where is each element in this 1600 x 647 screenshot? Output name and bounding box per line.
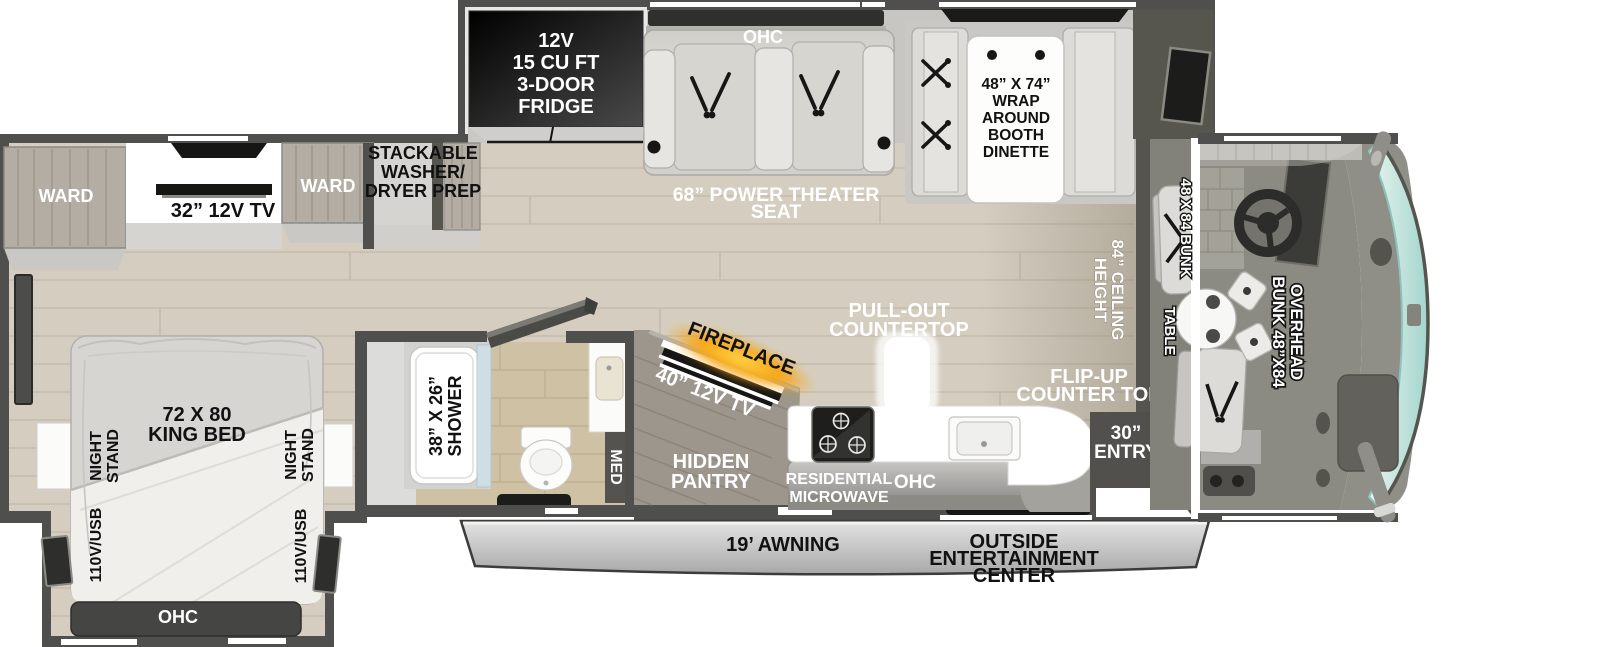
svg-text:48” X 74”: 48” X 74” xyxy=(982,76,1051,93)
svg-text:15 CU FT: 15 CU FT xyxy=(513,52,600,74)
svg-text:WARD: WARD xyxy=(301,176,356,196)
svg-text:STACKABLE: STACKABLE xyxy=(368,143,478,163)
svg-text:48 X 84 BUNK: 48 X 84 BUNK xyxy=(1177,178,1194,277)
svg-text:110V/USB: 110V/USB xyxy=(293,509,310,584)
svg-text:110V/USB: 110V/USB xyxy=(88,508,105,583)
svg-text:DRYER PREP: DRYER PREP xyxy=(365,181,481,201)
svg-text:SEAT: SEAT xyxy=(751,201,802,223)
svg-text:COUNTERTOP: COUNTERTOP xyxy=(829,319,969,341)
svg-text:AROUND: AROUND xyxy=(982,110,1050,127)
svg-text:WRAP: WRAP xyxy=(992,93,1039,110)
svg-text:SHOWER: SHOWER xyxy=(445,375,465,456)
svg-text:OHC: OHC xyxy=(743,27,783,47)
svg-text:OVERHEAD: OVERHEAD xyxy=(1287,284,1306,380)
svg-text:32” 12V TV: 32” 12V TV xyxy=(171,200,276,222)
svg-text:STAND: STAND xyxy=(105,429,122,483)
svg-text:NIGHT: NIGHT xyxy=(283,430,300,480)
svg-text:STAND: STAND xyxy=(300,428,317,482)
svg-text:CENTER: CENTER xyxy=(973,565,1056,587)
svg-text:HEIGHT: HEIGHT xyxy=(1091,258,1110,323)
svg-text:PANTRY: PANTRY xyxy=(671,471,752,493)
svg-text:ENTRY: ENTRY xyxy=(1094,442,1158,463)
svg-text:BOOTH: BOOTH xyxy=(988,127,1044,144)
svg-text:TABLE: TABLE xyxy=(1161,307,1178,356)
svg-text:19’ AWNING: 19’ AWNING xyxy=(726,534,840,556)
svg-text:WARD: WARD xyxy=(39,186,94,206)
svg-text:NIGHT: NIGHT xyxy=(88,431,105,481)
svg-text:3-DOOR: 3-DOOR xyxy=(517,74,595,96)
svg-text:30”: 30” xyxy=(1111,423,1142,444)
svg-text:KING BED: KING BED xyxy=(148,424,246,446)
svg-text:MICROWAVE: MICROWAVE xyxy=(789,489,889,506)
svg-text:WASHER/: WASHER/ xyxy=(381,162,465,182)
svg-text:HIDDEN: HIDDEN xyxy=(673,451,750,473)
svg-text:72 X 80: 72 X 80 xyxy=(163,404,232,426)
svg-text:RESIDENTIAL: RESIDENTIAL xyxy=(786,471,893,488)
svg-text:OHC: OHC xyxy=(894,472,937,493)
svg-text:MED: MED xyxy=(607,449,624,485)
svg-text:OHC: OHC xyxy=(158,607,198,627)
svg-text:DINETTE: DINETTE xyxy=(983,144,1049,161)
svg-text:BUNK 48”X84: BUNK 48”X84 xyxy=(1269,276,1288,388)
svg-text:COUNTER TOP: COUNTER TOP xyxy=(1016,384,1161,406)
svg-text:FRIDGE: FRIDGE xyxy=(518,96,594,118)
svg-text:38” X 26”: 38” X 26” xyxy=(426,376,446,456)
svg-text:12V: 12V xyxy=(538,30,574,52)
